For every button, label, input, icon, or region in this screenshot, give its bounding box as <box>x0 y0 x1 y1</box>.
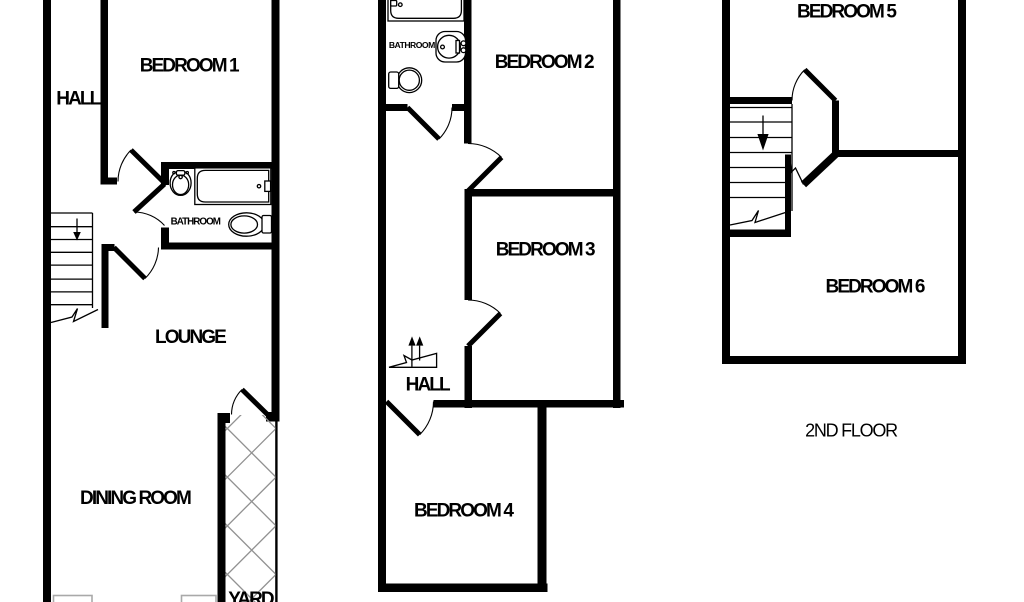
svg-text:BATHROOM: BATHROOM <box>389 40 435 50</box>
svg-text:BEDROOM 4: BEDROOM 4 <box>414 500 514 521</box>
svg-text:BEDROOM 6: BEDROOM 6 <box>826 276 925 297</box>
svg-text:BEDROOM 5: BEDROOM 5 <box>797 2 897 23</box>
svg-text:YARD: YARD <box>228 589 274 602</box>
svg-text:DINING ROOM: DINING ROOM <box>80 488 191 509</box>
svg-text:BEDROOM 2: BEDROOM 2 <box>495 52 594 73</box>
svg-text:BATHROOM: BATHROOM <box>171 217 221 228</box>
svg-text:2ND FLOOR: 2ND FLOOR <box>805 420 898 440</box>
svg-text:HALL: HALL <box>56 89 101 110</box>
svg-text:LOUNGE: LOUNGE <box>155 327 226 348</box>
svg-text:HALL: HALL <box>406 375 451 396</box>
svg-text:BEDROOM 3: BEDROOM 3 <box>496 239 595 260</box>
svg-text:BEDROOM 1: BEDROOM 1 <box>140 55 240 76</box>
